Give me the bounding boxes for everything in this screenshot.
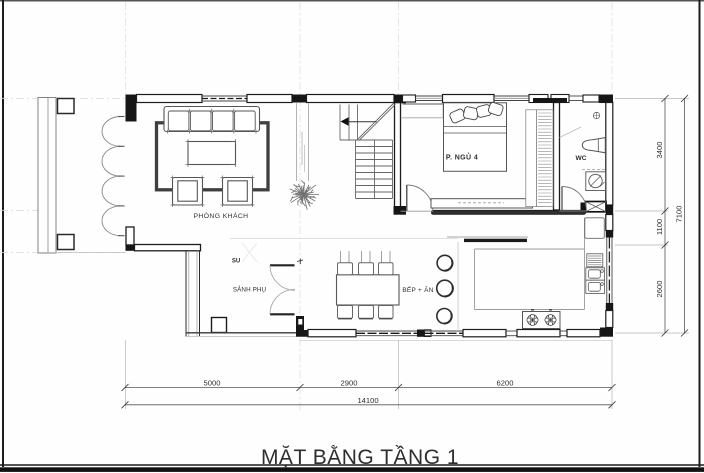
svg-text:7100: 7100 (675, 206, 684, 223)
svg-text:3400: 3400 (655, 142, 664, 159)
svg-text:2900: 2900 (341, 379, 358, 388)
svg-text:14100: 14100 (357, 396, 378, 405)
svg-text:5000: 5000 (204, 379, 221, 388)
svg-text:2600: 2600 (655, 281, 664, 298)
svg-text:SU: SU (232, 259, 240, 265)
svg-text:P. NGỦ 4: P. NGỦ 4 (446, 153, 478, 162)
svg-text:SẢNH PHỤ: SẢNH PHỤ (233, 285, 267, 294)
svg-text:PHÒNG KHÁCH: PHÒNG KHÁCH (193, 211, 248, 220)
svg-text:1100: 1100 (655, 219, 664, 235)
svg-text:6200: 6200 (497, 379, 514, 388)
svg-text:WC: WC (576, 155, 587, 162)
svg-text:MẶT BẰNG TẦNG 1: MẶT BẰNG TẦNG 1 (261, 445, 459, 469)
